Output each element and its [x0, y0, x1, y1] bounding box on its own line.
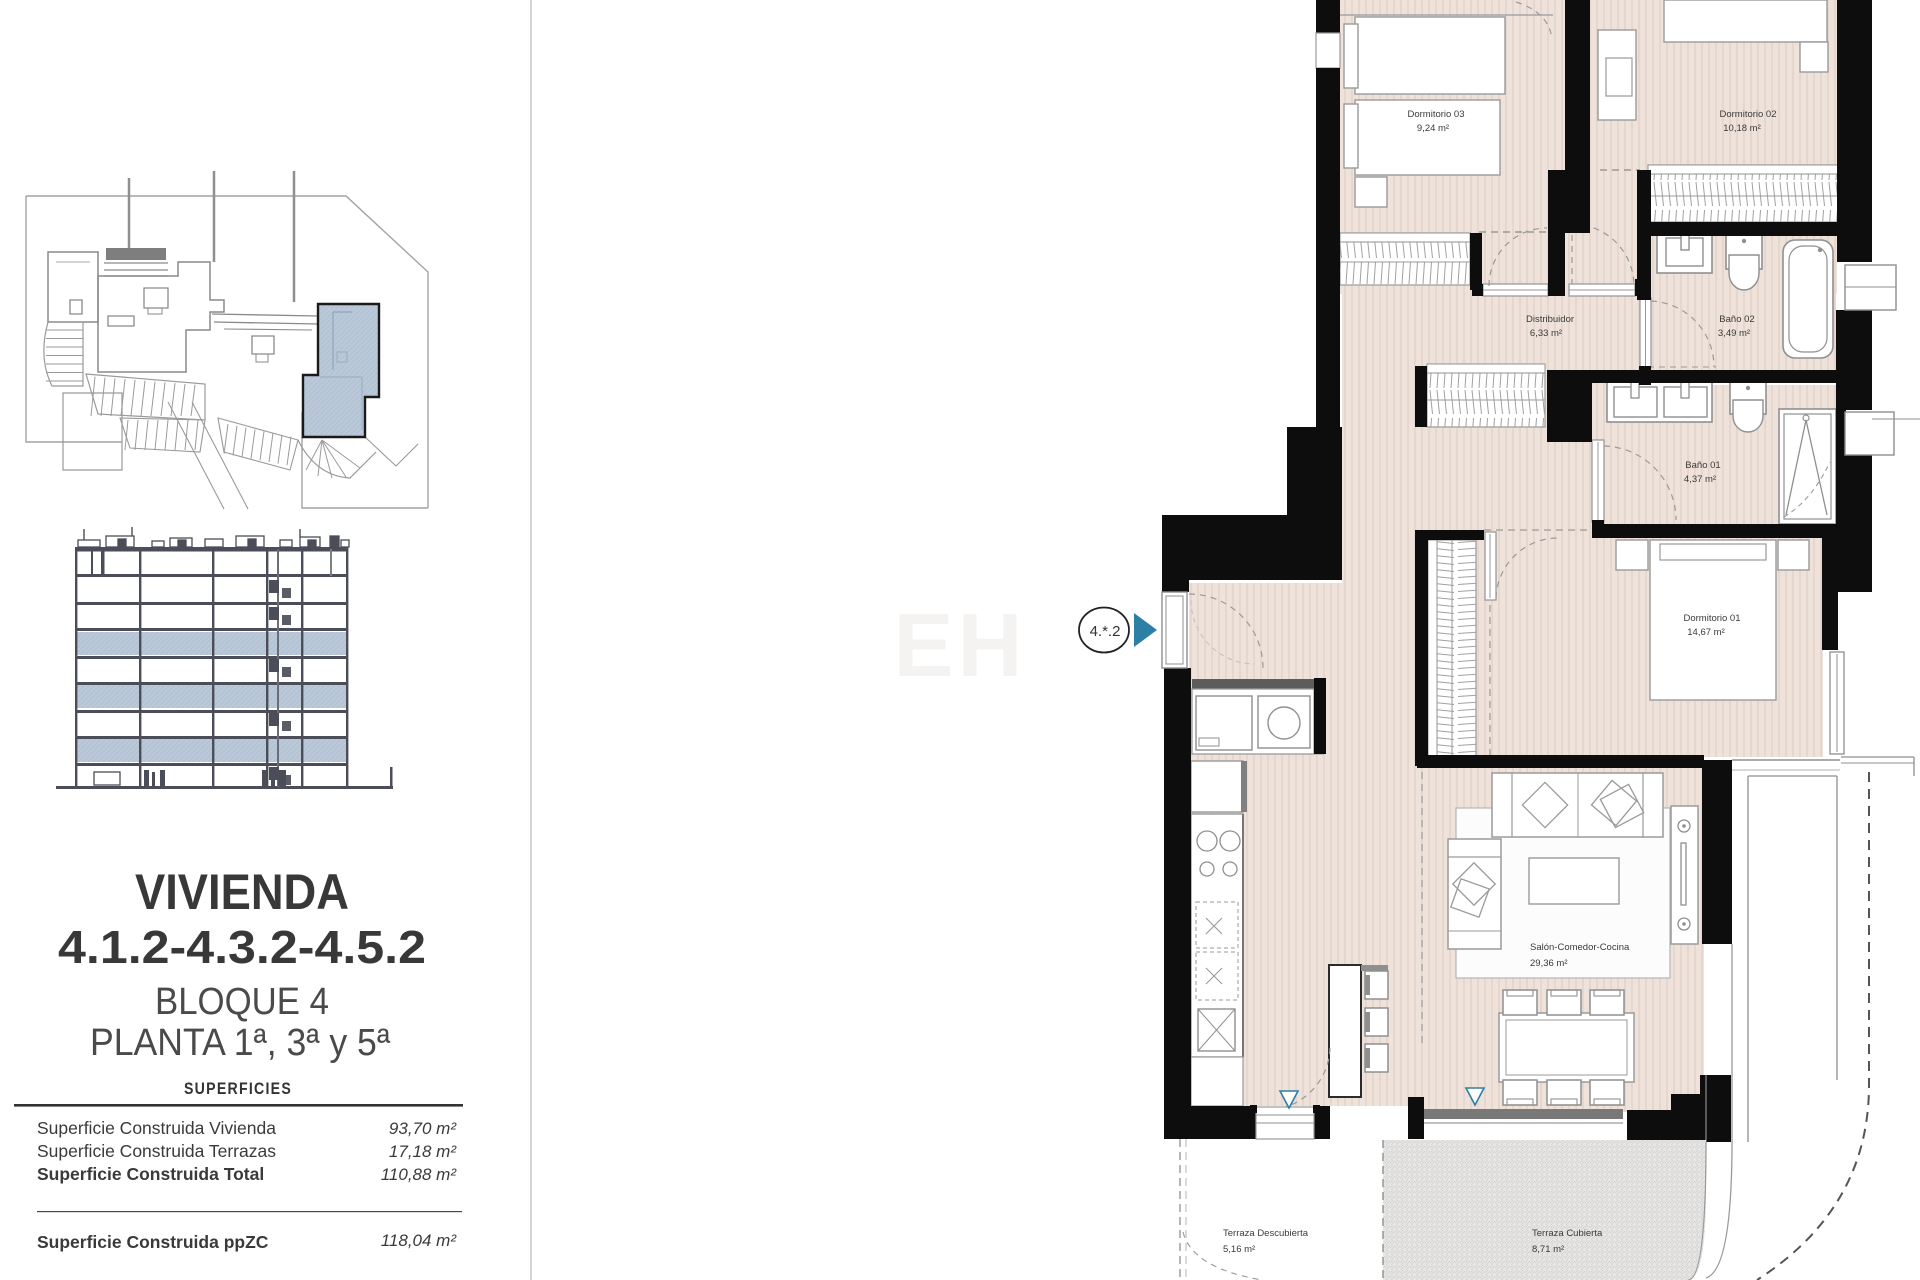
svg-text:8,71 m²: 8,71 m²: [1532, 1244, 1564, 1255]
svg-text:4.1.2-4.3.2-4.5.2: 4.1.2-4.3.2-4.5.2: [58, 921, 426, 973]
svg-text:VIVIENDA: VIVIENDA: [135, 864, 349, 920]
svg-text:29,36 m²: 29,36 m²: [1530, 958, 1568, 969]
svg-text:Dormitorio 02: Dormitorio 02: [1719, 109, 1776, 120]
svg-text:10,18 m²: 10,18 m²: [1723, 123, 1761, 134]
svg-text:Dormitorio 03: Dormitorio 03: [1407, 109, 1464, 120]
svg-text:Superficie Construida Total: Superficie Construida Total: [37, 1164, 264, 1184]
svg-text:Baño 01: Baño 01: [1685, 460, 1720, 471]
svg-text:4.*.2: 4.*.2: [1090, 623, 1121, 640]
svg-text:BLOQUE 4: BLOQUE 4: [155, 981, 329, 1023]
svg-text:EH: EH: [893, 596, 1026, 696]
svg-text:Distribuidor: Distribuidor: [1526, 314, 1574, 325]
svg-text:17,18 m²: 17,18 m²: [389, 1142, 457, 1161]
svg-text:Superficie Construida ppZC: Superficie Construida ppZC: [37, 1232, 269, 1252]
svg-text:Salón-Comedor-Cocina: Salón-Comedor-Cocina: [1530, 942, 1630, 953]
svg-text:Superficie Construida Terrazas: Superficie Construida Terrazas: [37, 1141, 276, 1161]
svg-text:SUPERFICIES: SUPERFICIES: [184, 1079, 292, 1098]
svg-text:9,24 m²: 9,24 m²: [1417, 123, 1449, 134]
svg-text:4,37 m²: 4,37 m²: [1684, 474, 1716, 485]
svg-text:Superficie Construida Vivienda: Superficie Construida Vivienda: [37, 1118, 276, 1138]
svg-text:118,04 m²: 118,04 m²: [381, 1231, 458, 1250]
svg-text:5,16 m²: 5,16 m²: [1223, 1244, 1255, 1255]
svg-text:Dormitorio 01: Dormitorio 01: [1683, 613, 1740, 624]
svg-text:Terraza Cubierta: Terraza Cubierta: [1532, 1228, 1603, 1239]
svg-text:110,88 m²: 110,88 m²: [381, 1165, 458, 1184]
svg-text:14,67 m²: 14,67 m²: [1687, 627, 1725, 638]
svg-text:Terraza Descubierta: Terraza Descubierta: [1223, 1228, 1309, 1239]
svg-text:PLANTA 1ª, 3ª y 5ª: PLANTA 1ª, 3ª y 5ª: [90, 1022, 391, 1064]
svg-text:3,49 m²: 3,49 m²: [1718, 328, 1750, 339]
svg-text:93,70 m²: 93,70 m²: [389, 1119, 457, 1138]
svg-text:6,33 m²: 6,33 m²: [1530, 328, 1562, 339]
svg-text:Baño 02: Baño 02: [1719, 314, 1754, 325]
